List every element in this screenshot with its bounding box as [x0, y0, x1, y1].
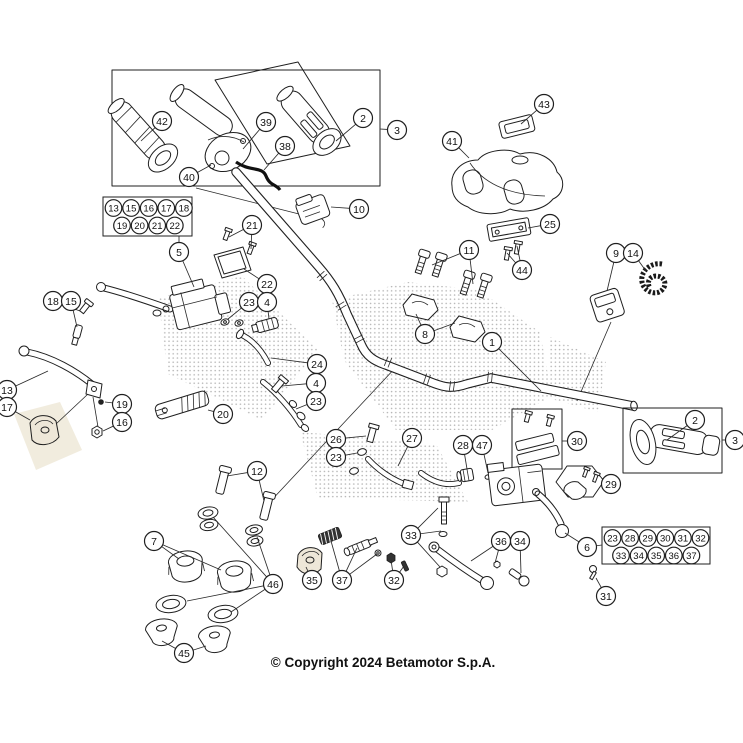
leader-line-37 [350, 554, 377, 574]
callout-label: 1 [489, 337, 495, 349]
diaphragm-box [512, 409, 562, 469]
callout-label: 41 [446, 136, 458, 148]
callout-label: 34 [633, 551, 644, 562]
callout-6[interactable]: 6 [578, 538, 597, 557]
leader-line-46 [257, 537, 270, 575]
callout-label: 29 [605, 479, 617, 491]
callout-label: 21 [246, 220, 258, 232]
leader-line-9 [607, 262, 614, 291]
lever-insert-spare [297, 548, 322, 575]
leader-line-22 [244, 269, 259, 279]
leader-line-16 [103, 426, 113, 431]
callout-24[interactable]: 24 [308, 355, 327, 374]
leader-line-13 [16, 371, 48, 386]
leader-line-37 [331, 541, 339, 571]
callout-12[interactable]: 12 [248, 462, 267, 481]
callout-label: 42 [156, 116, 168, 128]
lever-ball [98, 399, 104, 405]
callout-label: 29 [642, 533, 653, 544]
callout-46[interactable]: 46 [264, 575, 283, 594]
bar-pad [452, 150, 563, 213]
callout-29[interactable]: 29 [602, 475, 621, 494]
leader-line-14 [639, 261, 646, 271]
callout-38[interactable]: 38 [276, 137, 295, 156]
lever-nut [92, 426, 102, 438]
group-callout-30[interactable]: 30 [657, 530, 674, 547]
group-callout-31[interactable]: 31 [675, 530, 692, 547]
clamp-bracket [214, 227, 256, 278]
callout-label: 33 [616, 551, 627, 562]
leader-line-33 [420, 531, 441, 534]
callout-34[interactable]: 34 [511, 532, 530, 551]
cable-coil [642, 264, 665, 293]
callout-44[interactable]: 44 [513, 261, 532, 280]
group-callout-16[interactable]: 16 [140, 200, 157, 217]
callout-label: 19 [117, 221, 128, 232]
callout-27[interactable]: 27 [403, 429, 422, 448]
callout-label: 23 [310, 396, 322, 408]
adjuster-screw [343, 536, 378, 556]
callout-label: 30 [571, 436, 583, 448]
group-callout-36[interactable]: 36 [666, 547, 683, 564]
callout-label: 36 [669, 551, 680, 562]
leader-line-15 [73, 310, 77, 327]
callout-3[interactable]: 3 [726, 431, 743, 450]
callout-30[interactable]: 30 [568, 432, 587, 451]
callout-label: 2 [360, 113, 366, 125]
group-callout-19[interactable]: 19 [114, 217, 131, 234]
callout-label: 17 [161, 203, 172, 214]
callout-23[interactable]: 23 [307, 392, 326, 411]
callout-43[interactable]: 43 [535, 95, 554, 114]
callout-label: 38 [279, 141, 291, 153]
callout-label: 15 [126, 203, 137, 214]
callout-label: 43 [538, 99, 550, 111]
callout-7[interactable]: 7 [145, 532, 164, 551]
callout-label: 46 [267, 579, 279, 591]
lever-insert [30, 416, 59, 445]
callout-26[interactable]: 26 [327, 430, 346, 449]
leader-line-21 [251, 234, 252, 249]
pad-bracket [487, 217, 531, 241]
callout-2[interactable]: 2 [686, 411, 705, 430]
callout-label: 13 [1, 385, 13, 397]
group-callout-28[interactable]: 28 [622, 530, 639, 547]
callout-label: 28 [457, 440, 469, 452]
screw-31 [590, 566, 597, 580]
mount-bushings [197, 505, 264, 547]
right-grip [626, 417, 721, 467]
exploded-diagram-canvas: 4239238403102122543412544118914123424423… [0, 0, 743, 743]
callout-label: 22 [261, 279, 273, 291]
leader-line-10 [331, 207, 350, 208]
throttle-tube [167, 82, 236, 140]
leader-line-20 [208, 410, 214, 412]
leader-line-28 [465, 454, 467, 469]
callout-label: 25 [544, 219, 556, 231]
callout-20[interactable]: 20 [214, 405, 233, 424]
callout-label: 35 [306, 575, 318, 587]
callout-22[interactable]: 22 [258, 275, 277, 294]
callout-2[interactable]: 2 [354, 109, 373, 128]
kill-switch [293, 190, 334, 234]
copyright-text: © Copyright 2024 Betamotor S.p.A. [271, 655, 495, 670]
callout-label: 23 [330, 452, 342, 464]
group-callout-37[interactable]: 37 [683, 547, 700, 564]
callout-33[interactable]: 33 [402, 526, 421, 545]
callout-label: 24 [311, 359, 323, 371]
callout-3[interactable]: 3 [388, 121, 407, 140]
group-callout-34[interactable]: 34 [630, 547, 647, 564]
clutch-lever [19, 346, 102, 398]
callout-label: 36 [495, 536, 507, 548]
callout-label: 8 [422, 329, 428, 341]
parts-diagram-page: 4239238403102122543412544118914123424423… [0, 0, 743, 743]
callout-25[interactable]: 25 [541, 215, 560, 234]
callout-40[interactable]: 40 [180, 168, 199, 187]
group-callout-22[interactable]: 22 [167, 217, 184, 234]
callout-label: 32 [695, 533, 706, 544]
callout-label: 47 [476, 440, 488, 452]
callout-label: 40 [183, 172, 195, 184]
callout-label: 6 [584, 542, 590, 554]
callout-label: 20 [134, 221, 145, 232]
callout-label: 7 [151, 536, 157, 548]
hose-fitting [456, 468, 474, 483]
callout-35[interactable]: 35 [303, 571, 322, 590]
callout-label: 20 [217, 409, 229, 421]
group-callout-18[interactable]: 18 [176, 200, 193, 217]
callout-label: 16 [116, 417, 128, 429]
callout-23[interactable]: 23 [240, 293, 259, 312]
callout-label: 3 [732, 435, 738, 447]
callout-21[interactable]: 21 [243, 216, 262, 235]
leader-line-23 [296, 405, 307, 409]
callout-label: 26 [330, 434, 342, 446]
leader-line-40 [197, 165, 211, 172]
callout-17[interactable]: 17 [0, 398, 17, 417]
callout-label: 35 [651, 551, 662, 562]
callout-label: 15 [65, 296, 77, 308]
callout-label: 28 [625, 533, 636, 544]
callout-label: 12 [251, 466, 263, 478]
callout-39[interactable]: 39 [257, 113, 276, 132]
leader-line-34 [520, 550, 521, 573]
callout-label: 14 [627, 248, 639, 260]
callout-37[interactable]: 37 [333, 571, 352, 590]
callout-label: 13 [108, 203, 119, 214]
leader-line-6 [565, 533, 579, 542]
callout-label: 16 [143, 203, 154, 214]
callout-label: 22 [170, 221, 181, 232]
callout-label: 19 [116, 399, 128, 411]
callout-label: 31 [678, 533, 689, 544]
callout-label: 44 [516, 265, 528, 277]
callout-label: 30 [660, 533, 671, 544]
leader-line-36 [471, 546, 493, 561]
callout-label: 32 [388, 575, 400, 587]
callout-31[interactable]: 31 [597, 587, 616, 606]
callout-label: 37 [686, 551, 697, 562]
callout-1[interactable]: 1 [483, 333, 502, 352]
leader-line-12 [259, 480, 264, 501]
group-callout-32[interactable]: 32 [692, 530, 709, 547]
callout-11[interactable]: 11 [460, 241, 479, 260]
callout-47[interactable]: 47 [473, 436, 492, 455]
callout-15[interactable]: 15 [62, 292, 81, 311]
clevis-pin [401, 561, 409, 572]
spring-pin [154, 390, 210, 420]
callout-label: 37 [336, 575, 348, 587]
callout-label: 2 [692, 415, 698, 427]
leader-line-45 [193, 646, 206, 650]
callout-label: 9 [613, 248, 619, 260]
leader-line-31 [596, 578, 601, 588]
callout-16[interactable]: 16 [113, 413, 132, 432]
callout-42[interactable]: 42 [153, 112, 172, 131]
mount-housings [166, 549, 254, 594]
callout-19[interactable]: 19 [113, 395, 132, 414]
callout-18[interactable]: 18 [44, 292, 63, 311]
group-callout-17[interactable]: 17 [158, 200, 175, 217]
callout-14[interactable]: 14 [624, 244, 643, 263]
leader-line-41 [459, 148, 469, 158]
lever-spring [318, 527, 343, 545]
leader-line-46 [231, 589, 265, 612]
callout-label: 17 [1, 402, 13, 414]
leader-line-32 [400, 566, 404, 572]
callout-36[interactable]: 36 [492, 532, 511, 551]
handlebar-switch [589, 287, 625, 323]
clamp-box [556, 466, 604, 499]
callout-label: 39 [260, 117, 272, 129]
leader-line-47 [484, 454, 488, 473]
callout-label: 34 [514, 536, 526, 548]
callout-41[interactable]: 41 [443, 132, 462, 151]
callout-45[interactable]: 45 [175, 644, 194, 663]
group-callout-35[interactable]: 35 [648, 547, 665, 564]
callout-label: 3 [394, 125, 400, 137]
group-callout-29[interactable]: 29 [639, 530, 656, 547]
callout-label: 11 [464, 245, 475, 257]
callout-label: 23 [607, 533, 618, 544]
callout-label: 10 [353, 204, 365, 216]
group-callout-21[interactable]: 21 [149, 217, 166, 234]
leader-line-33 [418, 508, 438, 528]
leader-line-6 [596, 545, 602, 546]
callout-9[interactable]: 9 [607, 244, 626, 263]
callout-label: 18 [179, 203, 190, 214]
pivot-bolt [437, 497, 449, 577]
group-callout-33[interactable]: 33 [613, 547, 630, 564]
callout-label: 33 [405, 530, 417, 542]
leader-line-19 [105, 402, 113, 403]
brake-master-cylinder [487, 458, 568, 538]
callout-10[interactable]: 10 [350, 200, 369, 219]
lever-pin [71, 324, 83, 345]
callout-label: 27 [406, 433, 418, 445]
callout-23[interactable]: 23 [327, 448, 346, 467]
group-callout-13[interactable]: 13 [105, 200, 122, 217]
callout-8[interactable]: 8 [416, 325, 435, 344]
callout-label: 5 [176, 247, 182, 259]
callout-label: 23 [243, 297, 255, 309]
pad-clip [498, 114, 535, 139]
throttle-housing [198, 125, 257, 179]
left-grip [101, 91, 183, 177]
group-callout-23[interactable]: 23 [604, 530, 621, 547]
callout-label: 31 [600, 591, 612, 603]
callout-label: 4 [264, 297, 270, 309]
callout-5[interactable]: 5 [170, 243, 189, 262]
callout-label: 4 [313, 378, 319, 390]
callout-label: 21 [152, 221, 163, 232]
callout-28[interactable]: 28 [454, 436, 473, 455]
group-callout-20[interactable]: 20 [131, 217, 148, 234]
callout-13[interactable]: 13 [0, 381, 17, 400]
callout-label: 45 [178, 648, 190, 660]
group-callout-15[interactable]: 15 [123, 200, 140, 217]
callout-4[interactable]: 4 [258, 293, 277, 312]
callout-4[interactable]: 4 [307, 374, 326, 393]
callout-label: 18 [47, 296, 59, 308]
callout-32[interactable]: 32 [385, 571, 404, 590]
ball-screw [508, 568, 529, 586]
